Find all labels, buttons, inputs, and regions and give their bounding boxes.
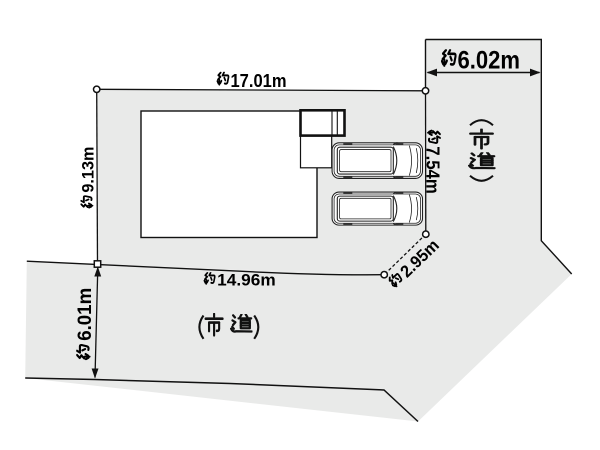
svg-text:9.13m: 9.13m [79,147,98,193]
svg-text:17.01m: 17.01m [231,70,287,91]
svg-text:14.96m: 14.96m [217,271,276,290]
svg-text:6.02m: 6.02m [458,47,521,75]
svg-text:7.54m: 7.54m [423,146,443,194]
svg-text:6.01m: 6.01m [75,288,96,341]
